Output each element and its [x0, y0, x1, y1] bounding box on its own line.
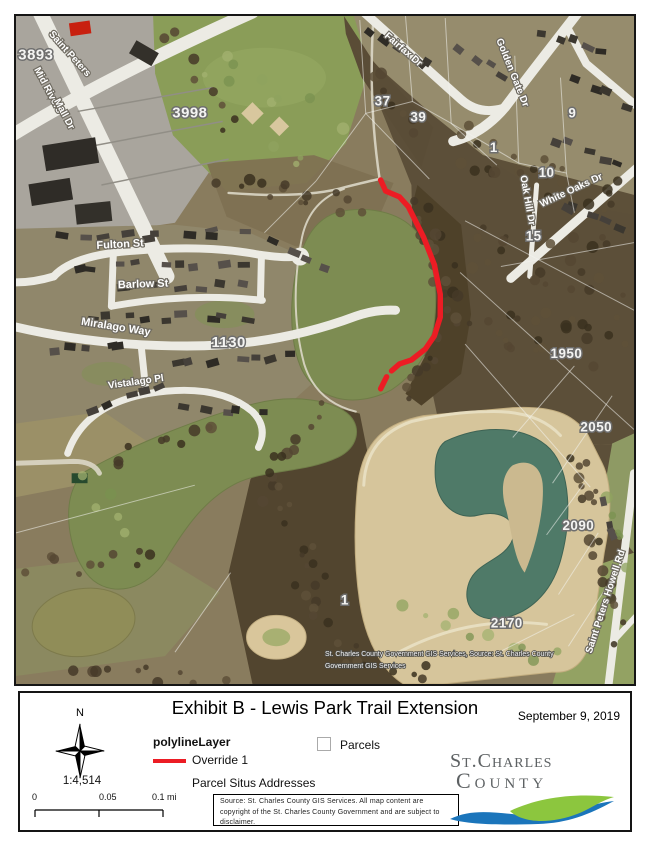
parcel-label-1130: 1130: [211, 335, 245, 351]
legend-parcels-label: Parcels: [340, 738, 380, 752]
parcels-swatch: [317, 737, 331, 751]
parcel-label-39: 39: [410, 109, 426, 124]
legend-situs-label: Parcel Situs Addresses: [192, 776, 315, 790]
parcel-label-37: 37: [375, 93, 391, 108]
parcel-label-3893: 3893: [18, 48, 53, 64]
street-label-fulton: Fulton St: [96, 237, 144, 251]
parcel-label-1-woods: 1: [490, 140, 498, 155]
source-disclaimer-box: Source: St. Charles County GIS Services.…: [213, 794, 459, 826]
override-line-swatch: [153, 759, 186, 763]
street-label-barlow: Barlow St: [118, 277, 169, 291]
parcel-label-1-lake: 1: [341, 592, 349, 607]
legend-override-label: Override 1: [192, 753, 248, 767]
attribution-line2: Government GIS Services: [325, 663, 406, 670]
attribution-line1: St. Charles County Government GIS Servic…: [325, 651, 554, 658]
logo-wave-icon: [448, 793, 616, 827]
parcel-label-9: 9: [568, 105, 576, 120]
scale-bar-rule: [32, 807, 182, 819]
scale-tick-01mi: 0.1 mi: [152, 792, 177, 802]
parcel-label-2090: 2090: [562, 518, 594, 533]
scale-ratio: 1:4,514: [34, 775, 130, 787]
aerial-map: 3893 3998 37 39 1 9 10 15 1130 1950 2050…: [14, 14, 636, 686]
map-canvas: 3893 3998 37 39 1 9 10 15 1130 1950 2050…: [16, 16, 634, 684]
scale-bar: 0 0.05 0.1 mi: [32, 792, 182, 824]
legend-layer-group: polylineLayer: [153, 735, 230, 749]
north-label: N: [53, 707, 107, 719]
compass-rose-icon: [53, 720, 107, 782]
parcel-label-1950: 1950: [551, 346, 583, 361]
logo-line2: County: [456, 770, 616, 792]
county-logo: St.Charles County: [448, 751, 616, 827]
parcel-label-2170: 2170: [491, 615, 523, 630]
scale-tick-0: 0: [32, 792, 37, 802]
map-date: September 9, 2019: [518, 709, 620, 723]
legend-panel: Exhibit B - Lewis Park Trail Extension S…: [18, 691, 632, 832]
exhibit-page: 3893 3998 37 39 1 9 10 15 1130 1950 2050…: [0, 0, 650, 841]
scale-tick-005: 0.05: [99, 792, 117, 802]
parcel-label-2050: 2050: [580, 420, 612, 435]
parcel-label-3998: 3998: [172, 105, 207, 121]
parcel-label-10: 10: [539, 165, 555, 180]
parcel-label-15: 15: [526, 229, 542, 244]
